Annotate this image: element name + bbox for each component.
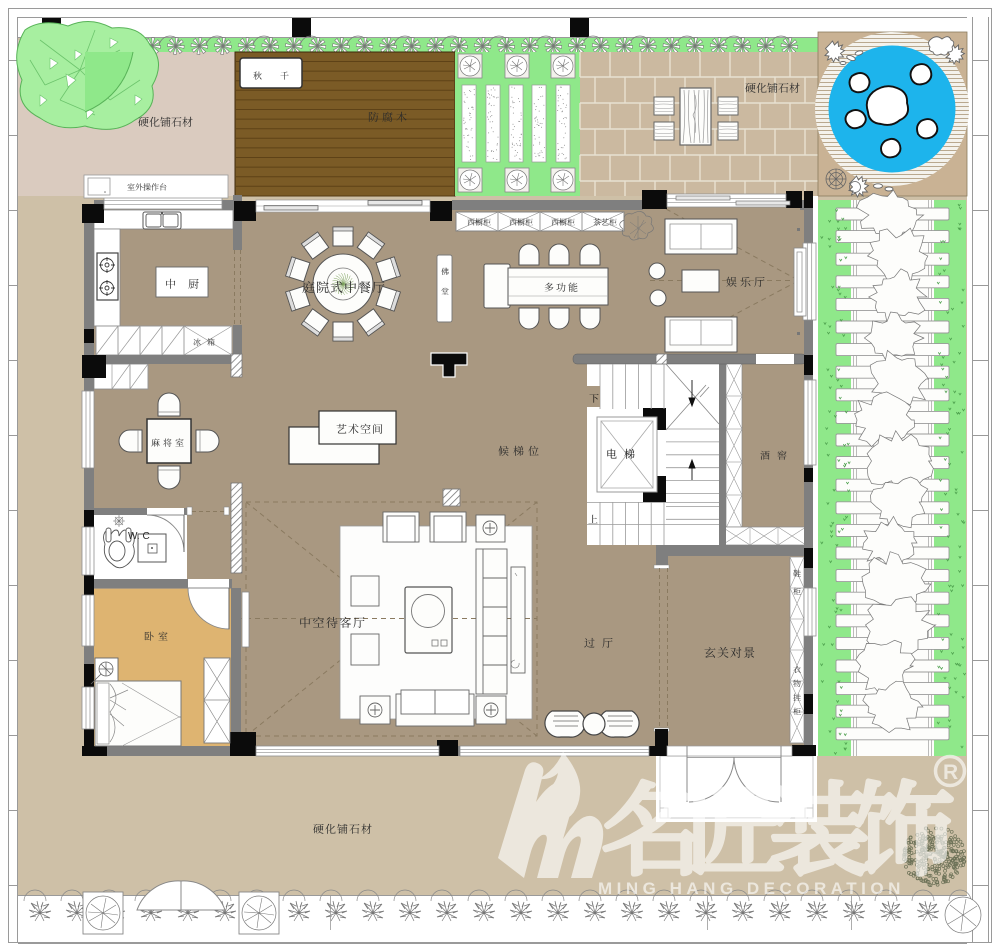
svg-text:MING HANG DECORATION: MING HANG DECORATION [598, 879, 905, 898]
svg-text:W. C: W. C [128, 531, 150, 542]
svg-text:R: R [943, 761, 958, 784]
